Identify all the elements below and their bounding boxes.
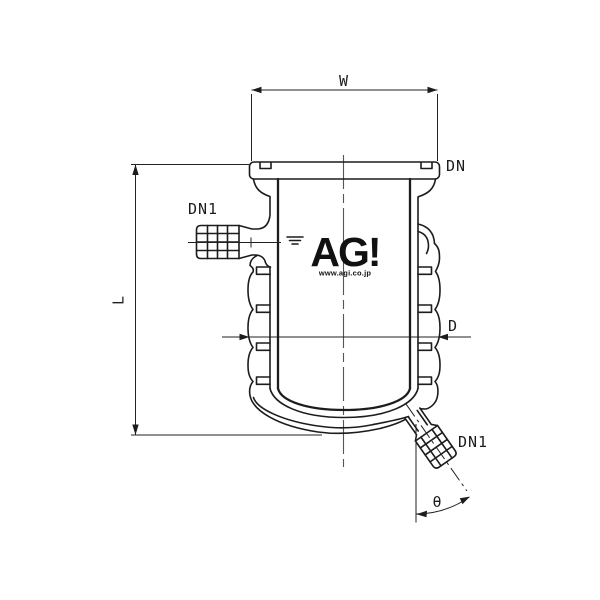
jacket-ribs-right [418,267,432,384]
arrowhead-left [252,87,262,93]
arrowhead-right [428,87,438,93]
jacket-rib [418,305,432,312]
liquid-level-icon [287,237,303,244]
top-flange: DN [250,157,467,179]
jacket-rib [257,343,271,350]
flange-groove-right [421,163,432,169]
dimension-d: D [222,317,471,340]
agi-logo-url: www.agi.co.jp [318,269,372,278]
jacket-shoulder-outer [418,224,435,244]
jacket-rib [418,343,432,350]
arrowhead-right [460,497,470,505]
label-dn1-side: DN1 [188,200,218,218]
jacket-rib [257,377,271,384]
label-l: L [110,295,128,305]
jacket-ribs-left [257,267,271,384]
arrowhead-left [417,511,428,518]
flange-groove-left [260,163,271,169]
jacket-rib [418,377,432,384]
label-theta: θ [432,493,442,511]
jacket-shoulder-inner [418,232,429,254]
vessel-body [239,179,436,418]
drain-port-dn1: DN1 [395,396,488,498]
arrowhead-up [132,165,138,176]
side-port-dn1: DN1 [188,200,281,267]
jacket-rib [257,267,271,274]
label-d: D [448,317,458,335]
label-w: W [339,72,349,90]
reactor-vessel-drawing: W L D DN [0,0,600,600]
jacket-rib [418,267,432,274]
label-dn1-drain: DN1 [458,433,488,451]
arrowhead-down [132,425,138,436]
agi-logo: AG! www.agi.co.jp [310,229,379,278]
label-dn: DN [446,157,466,175]
technical-drawing-canvas: W L D DN [0,0,600,600]
jacket-rib [257,305,271,312]
dimension-w: W [252,72,438,161]
